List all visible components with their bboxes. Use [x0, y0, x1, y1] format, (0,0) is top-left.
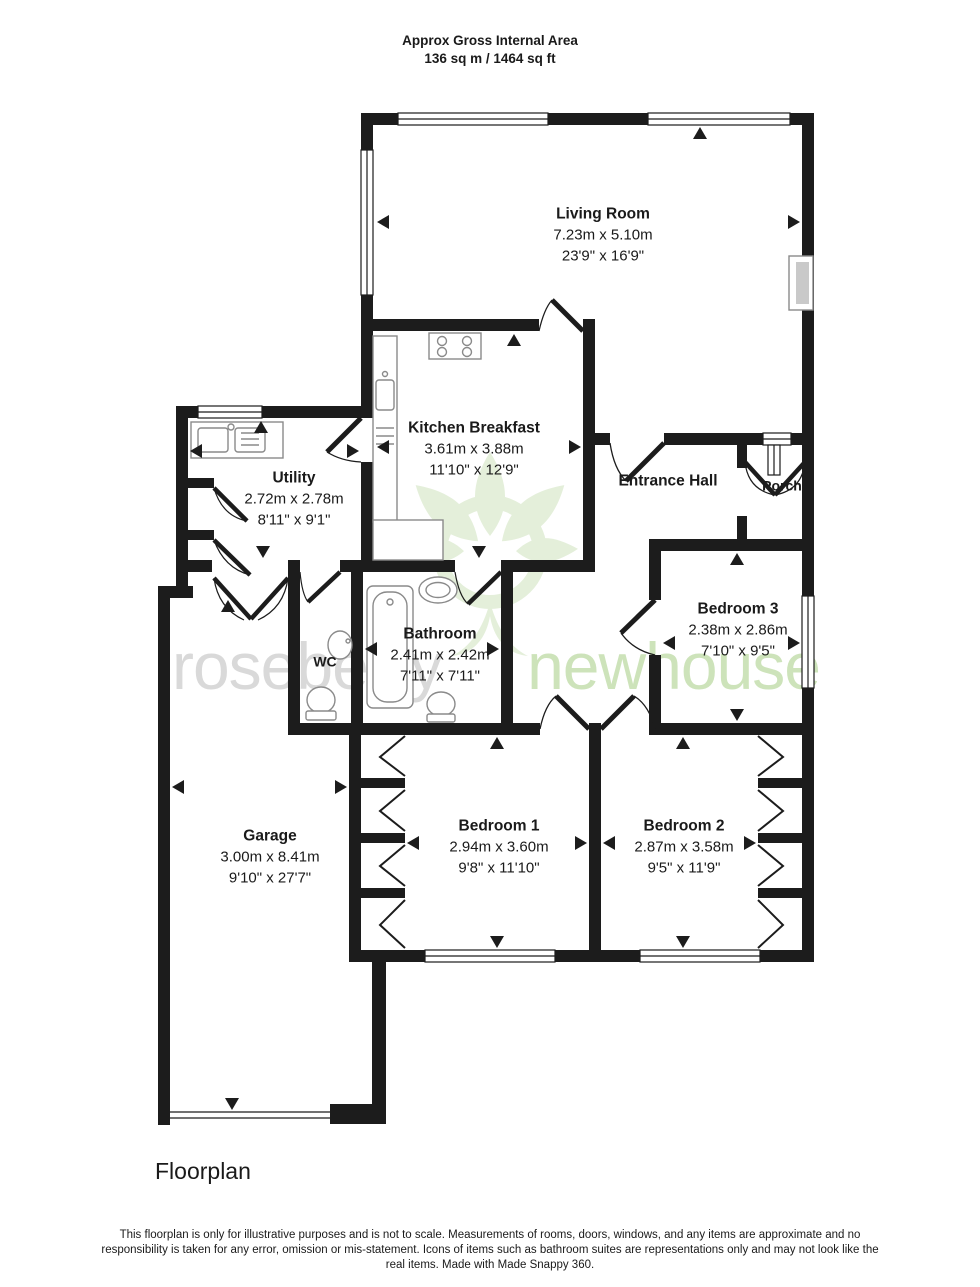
basin-icon [419, 577, 457, 603]
fireplace-icon [789, 256, 813, 310]
door [214, 540, 250, 575]
toilet-icon [306, 687, 336, 720]
door [539, 300, 583, 331]
window [398, 113, 548, 125]
measure-arrow [256, 546, 270, 558]
door [621, 600, 655, 655]
measure-arrow [377, 215, 389, 229]
measure-arrow [335, 780, 347, 794]
toilet-icon [427, 692, 455, 722]
measure-arrow [347, 444, 359, 458]
door [251, 578, 288, 620]
door [601, 696, 655, 729]
room-label-bedroom-3: Bedroom 3 2.38m x 2.86m 7'10" x 9'5" [688, 599, 787, 662]
floorplan-caption: Floorplan [155, 1158, 251, 1185]
measure-arrow [569, 440, 581, 454]
measure-arrow [490, 936, 504, 948]
counter [373, 520, 443, 560]
measure-arrow [693, 127, 707, 139]
measure-arrow [172, 780, 184, 794]
measure-arrow [788, 636, 800, 650]
floorplan-page: Approx Gross Internal Area 136 sq m / 14… [0, 0, 980, 1287]
measure-arrow [663, 636, 675, 650]
kitchen-sink-icon [373, 336, 397, 522]
door [540, 696, 589, 729]
measure-arrow [507, 334, 521, 346]
measure-arrow [730, 553, 744, 565]
room-label-porch: Porch [762, 476, 802, 497]
room-label-garage: Garage 3.00m x 8.41m 9'10" x 27'7" [220, 826, 319, 889]
measure-arrow [472, 546, 486, 558]
window [768, 445, 780, 475]
measure-arrow [490, 737, 504, 749]
measure-arrow [225, 1098, 239, 1110]
hob-icon [429, 333, 481, 359]
disclaimer-text: This floorplan is only for illustrative … [93, 1228, 888, 1273]
room-label-living-room: Living Room 7.23m x 5.10m 23'9" x 16'9" [553, 204, 652, 267]
measure-arrow [676, 737, 690, 749]
room-label-bathroom: Bathroom 2.41m x 2.42m 7'11" x 7'11" [390, 624, 489, 687]
measure-arrow [730, 709, 744, 721]
room-label-kitchen: Kitchen Breakfast 3.61m x 3.88m 11'10" x… [408, 418, 540, 481]
room-label-utility: Utility 2.72m x 2.78m 8'11" x 9'1" [244, 468, 343, 531]
window [648, 113, 790, 125]
window [198, 406, 262, 418]
window [640, 950, 760, 962]
window [425, 950, 555, 962]
floorplan-drawing [0, 0, 980, 1287]
door [214, 578, 251, 620]
measure-arrow [676, 936, 690, 948]
measure-arrow [603, 836, 615, 850]
garage-door [170, 1112, 330, 1118]
door [214, 488, 247, 521]
measure-arrow [407, 836, 419, 850]
measure-arrow [788, 215, 800, 229]
room-label-bedroom-2: Bedroom 2 2.87m x 3.58m 9'5" x 11'9" [634, 816, 733, 879]
door [300, 572, 340, 602]
sink-icon [191, 422, 283, 458]
window [361, 150, 373, 295]
room-label-wc: WC [313, 652, 336, 673]
room-label-bedroom-1: Bedroom 1 2.94m x 3.60m 9'8" x 11'10" [449, 816, 548, 879]
room-label-entrance-hall: Entrance Hall [618, 471, 717, 492]
window [802, 596, 814, 688]
measure-arrow [744, 836, 756, 850]
window [763, 433, 791, 445]
door [327, 418, 361, 462]
measure-arrow [575, 836, 587, 850]
